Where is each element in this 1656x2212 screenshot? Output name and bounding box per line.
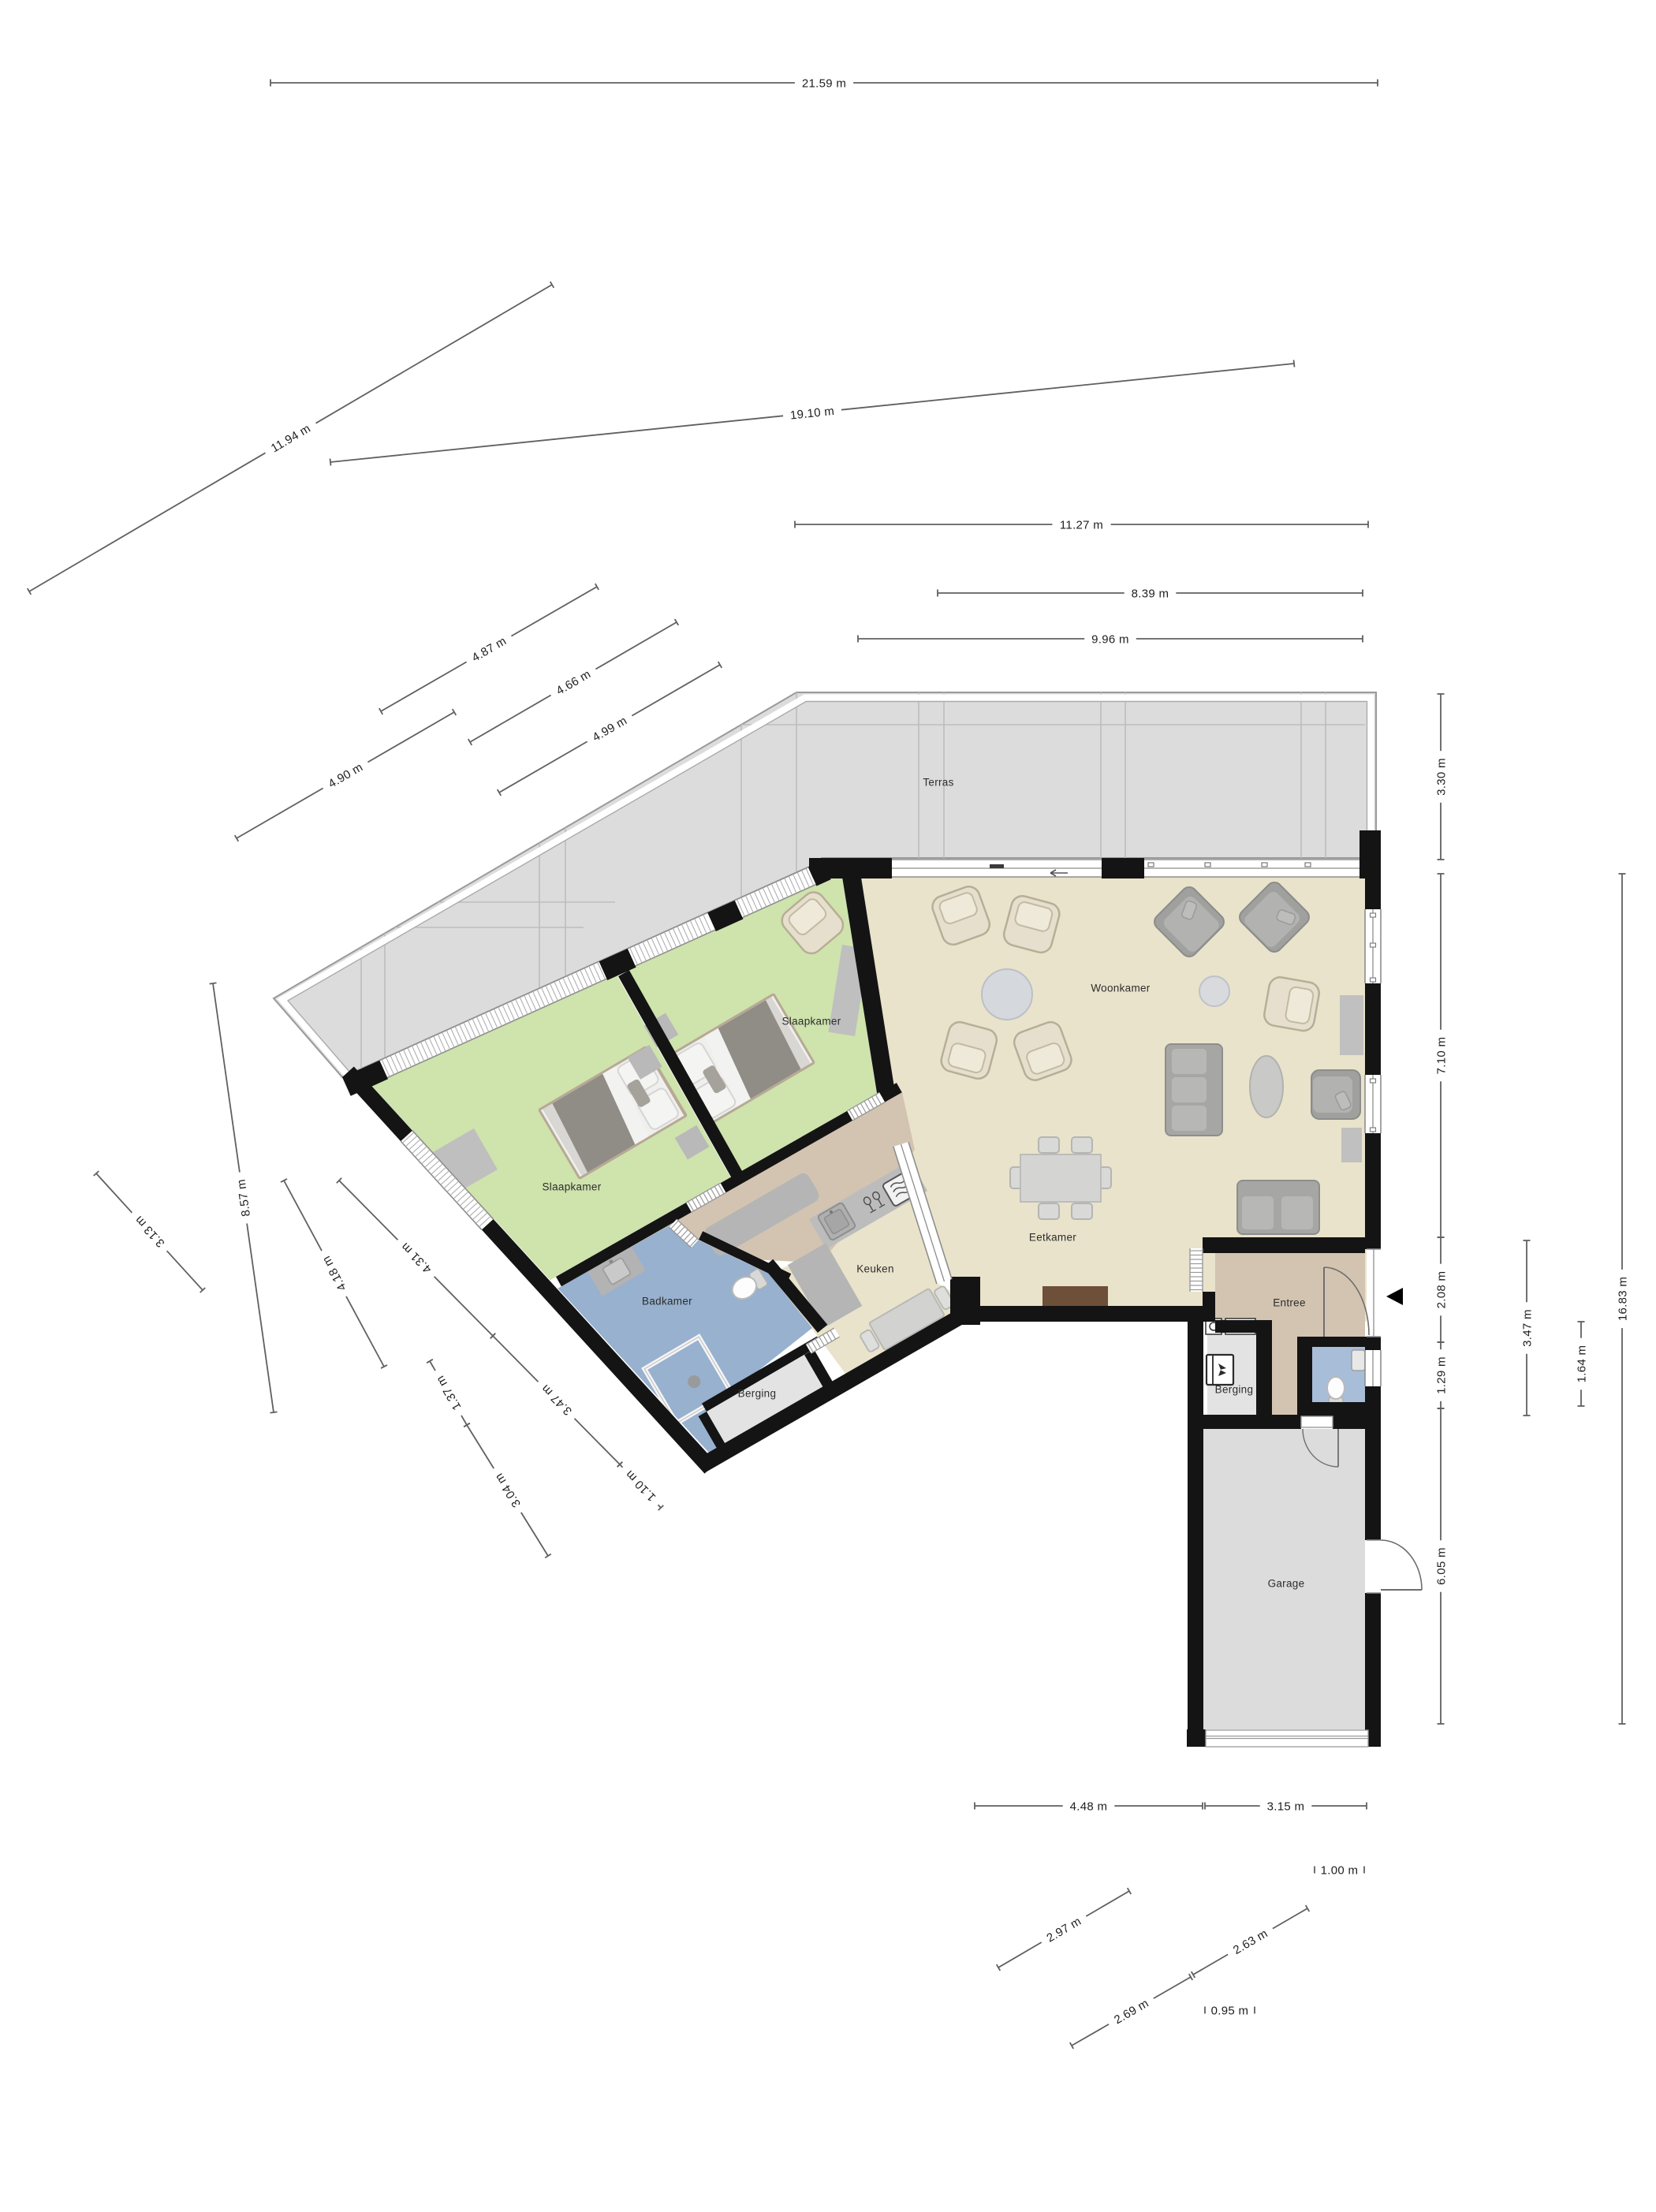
svg-text:Terras: Terras (923, 777, 953, 789)
svg-text:21.59 m: 21.59 m (802, 76, 846, 90)
svg-text:6.05 m: 6.05 m (1434, 1547, 1448, 1585)
svg-text:Garage: Garage (1268, 1578, 1305, 1590)
svg-text:16.83 m: 16.83 m (1616, 1277, 1629, 1321)
svg-text:4.48 m: 4.48 m (1070, 1800, 1108, 1813)
svg-text:Woonkamer: Woonkamer (1091, 983, 1150, 994)
svg-text:2.08 m: 2.08 m (1434, 1271, 1448, 1309)
svg-text:11.27 m: 11.27 m (1060, 518, 1103, 532)
svg-text:3.15 m: 3.15 m (1267, 1800, 1305, 1813)
svg-text:1.64 m: 1.64 m (1575, 1345, 1588, 1383)
svg-text:Keuken: Keuken (856, 1263, 894, 1275)
svg-text:Entree: Entree (1273, 1297, 1306, 1309)
svg-text:9.96 m: 9.96 m (1091, 632, 1129, 646)
svg-text:3.47 m: 3.47 m (1520, 1309, 1534, 1347)
svg-text:Berging: Berging (1215, 1384, 1254, 1396)
svg-text:3.30 m: 3.30 m (1434, 758, 1448, 796)
svg-text:1.00 m: 1.00 m (1321, 1863, 1359, 1877)
svg-text:7.10 m: 7.10 m (1434, 1037, 1448, 1075)
svg-text:1.29 m: 1.29 m (1434, 1356, 1448, 1394)
svg-text:8.39 m: 8.39 m (1132, 587, 1169, 600)
svg-text:0.95 m: 0.95 m (1211, 2004, 1249, 2017)
svg-text:Eetkamer: Eetkamer (1029, 1232, 1076, 1244)
svg-text:Berging: Berging (738, 1388, 777, 1400)
svg-text:Slaapkamer: Slaapkamer (781, 1016, 841, 1028)
svg-text:Slaapkamer: Slaapkamer (542, 1181, 601, 1193)
svg-text:Badkamer: Badkamer (642, 1296, 692, 1307)
